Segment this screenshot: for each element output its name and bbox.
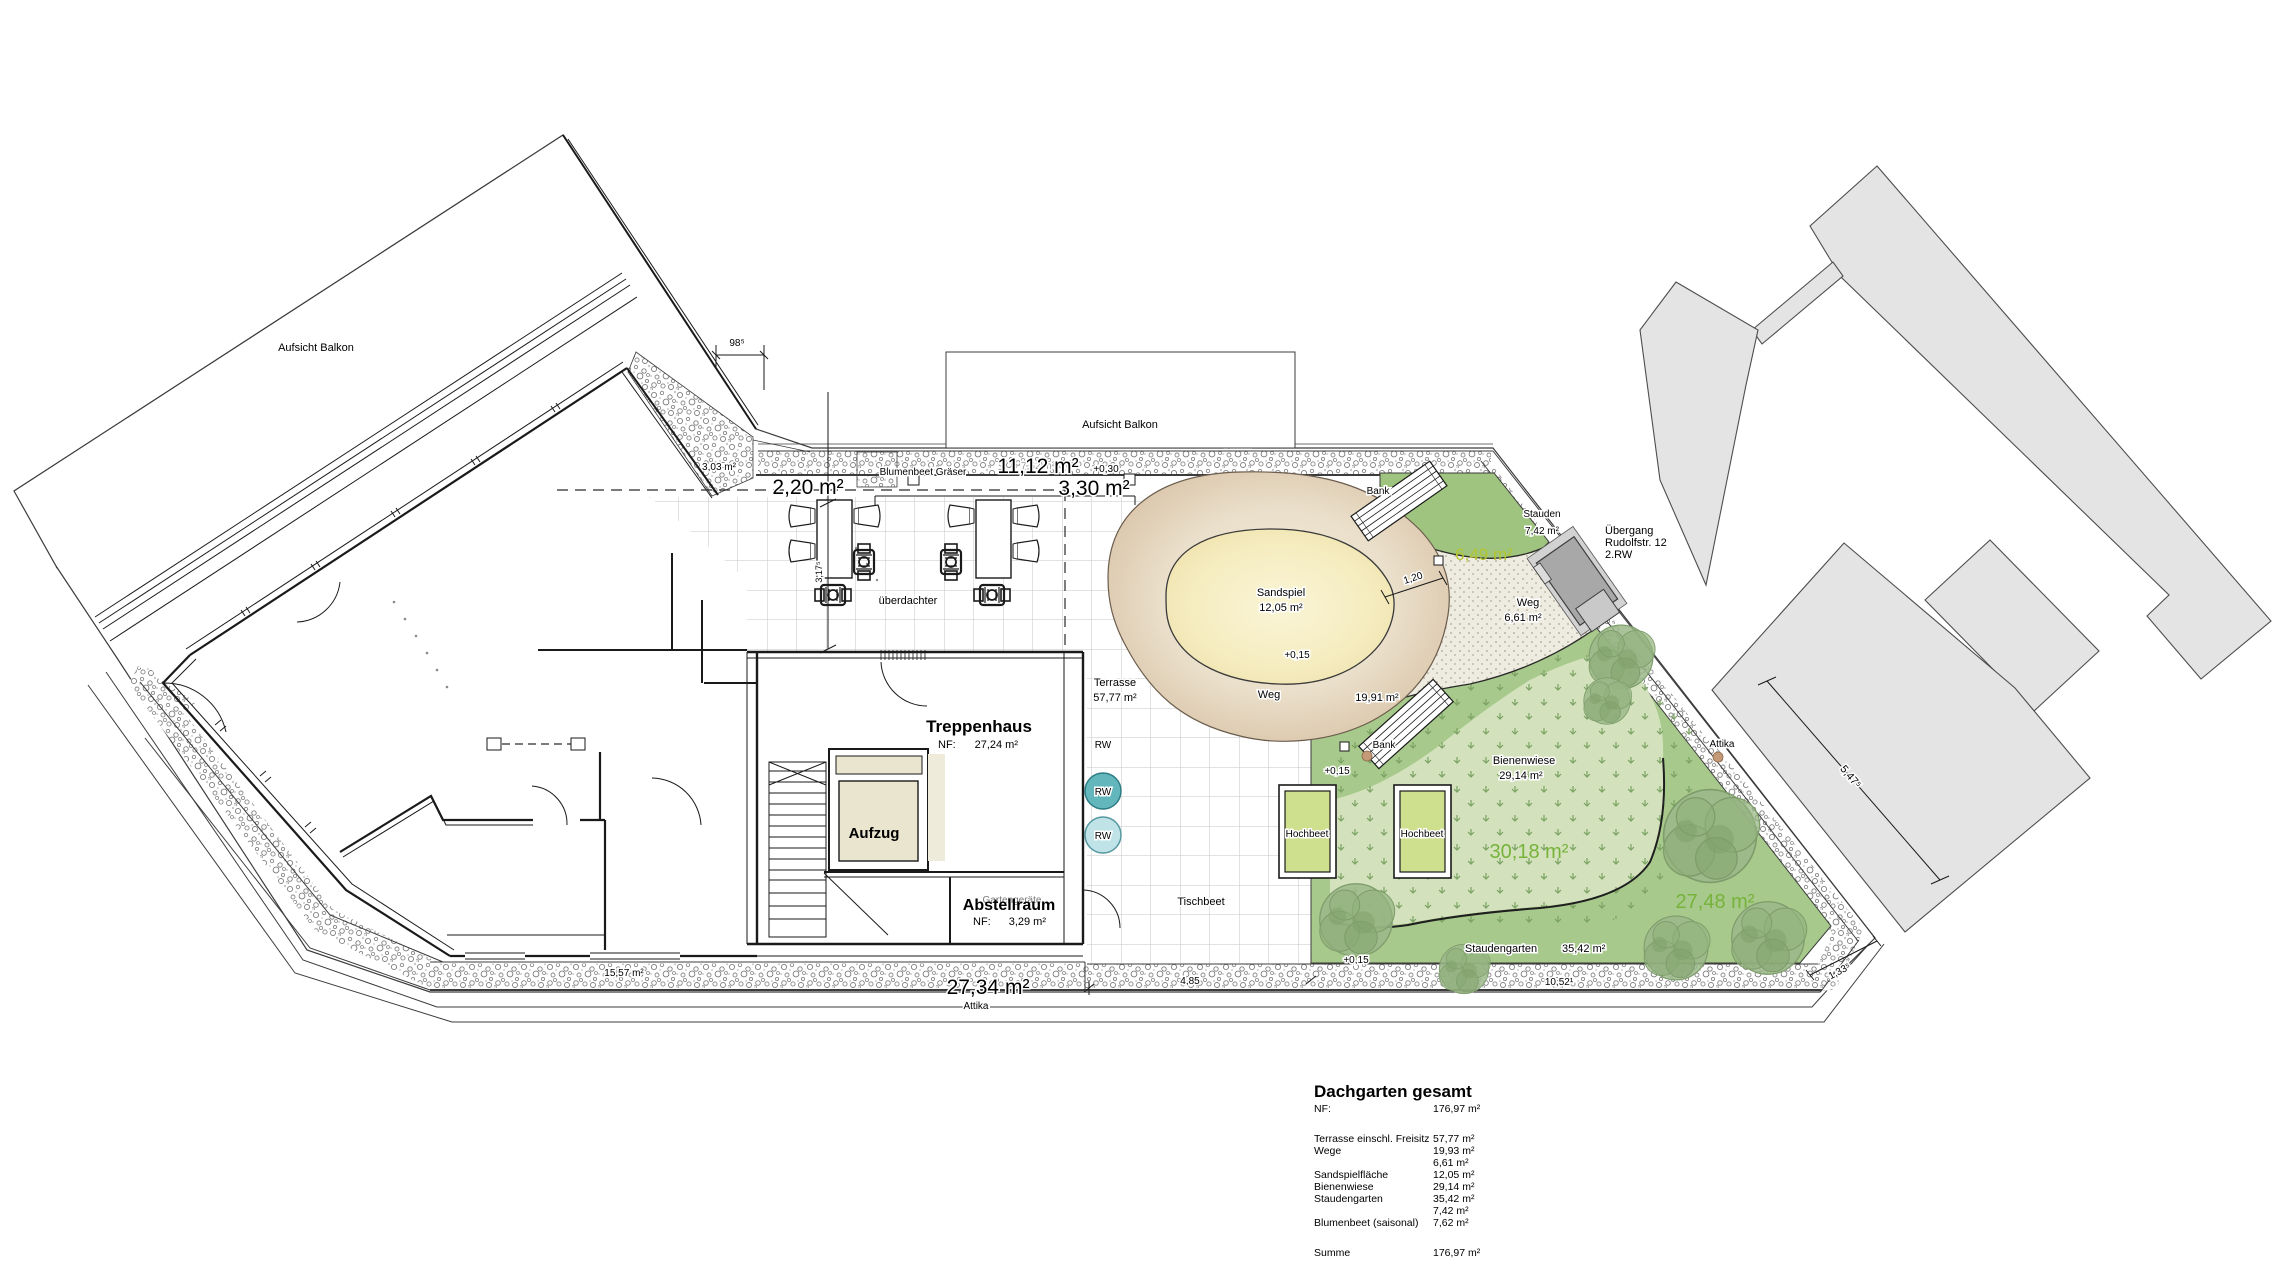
svg-text:12,05 m²: 12,05 m²: [1433, 1169, 1475, 1181]
svg-text:RW: RW: [1095, 831, 1112, 842]
svg-text:Weg: Weg: [1517, 597, 1539, 609]
svg-text:27,24 m²: 27,24 m²: [975, 739, 1019, 751]
svg-text:19,93 m²: 19,93 m²: [1433, 1145, 1475, 1157]
svg-text:3,03 m²: 3,03 m²: [702, 462, 737, 473]
svg-text:Aufzug: Aufzug: [849, 825, 900, 842]
svg-text:10,52¹: 10,52¹: [1545, 977, 1574, 988]
svg-text:12,05 m²: 12,05 m²: [1259, 602, 1303, 614]
svg-text:Terrasse einschl. Freisitz: Terrasse einschl. Freisitz: [1314, 1133, 1430, 1145]
svg-text:Bank: Bank: [1367, 486, 1391, 497]
svg-text:19,91 m²: 19,91 m²: [1355, 692, 1399, 704]
svg-text:Terrasse: Terrasse: [1094, 677, 1136, 689]
svg-text:3,29 m²: 3,29 m²: [1009, 916, 1047, 928]
svg-text:Wege: Wege: [1314, 1145, 1341, 1157]
svg-text:Blumenbeet (saisonal): Blumenbeet (saisonal): [1314, 1217, 1418, 1229]
svg-text:176,97 m²: 176,97 m²: [1433, 1247, 1481, 1259]
svg-text:RW: RW: [1095, 787, 1112, 798]
svg-text:+0,15: +0,15: [1284, 650, 1310, 661]
svg-text:176,97 m²: 176,97 m²: [1433, 1103, 1481, 1115]
svg-text:29,14 m²: 29,14 m²: [1433, 1181, 1475, 1193]
svg-text:Weg: Weg: [1258, 689, 1280, 701]
svg-text:NF:: NF:: [1314, 1103, 1331, 1115]
svg-text:Sandspiel: Sandspiel: [1257, 587, 1305, 599]
svg-text:Staudengarten: Staudengarten: [1314, 1193, 1383, 1205]
svg-text:Aufsicht Balkon: Aufsicht Balkon: [278, 342, 354, 354]
svg-text:Blumenbeet Gräser: Blumenbeet Gräser: [880, 467, 967, 478]
svg-text:Bank: Bank: [1373, 740, 1397, 751]
svg-text:4,85: 4,85: [1180, 976, 1200, 987]
svg-text:Hochbeet: Hochbeet: [1401, 829, 1444, 840]
svg-text:7,42 m²: 7,42 m²: [1433, 1205, 1469, 1217]
svg-text:Treppenhaus: Treppenhaus: [926, 717, 1032, 736]
svg-text:Summe: Summe: [1314, 1247, 1350, 1259]
svg-text:Stauden: Stauden: [1523, 509, 1560, 520]
svg-text:7,42 m²: 7,42 m²: [1525, 526, 1560, 537]
svg-text:Aufsicht Balkon: Aufsicht Balkon: [1082, 419, 1158, 431]
svg-text:57,77 m²: 57,77 m²: [1093, 692, 1137, 704]
svg-text:RW: RW: [1095, 740, 1112, 751]
svg-text:NF:: NF:: [938, 739, 956, 751]
svg-text:35,42 m²: 35,42 m²: [1562, 943, 1606, 955]
svg-text:6,61 m²: 6,61 m²: [1433, 1157, 1469, 1169]
svg-text:überdachter: überdachter: [879, 595, 938, 607]
svg-text:98⁵: 98⁵: [729, 338, 744, 349]
svg-text:Sandspielfläche: Sandspielfläche: [1314, 1169, 1388, 1181]
svg-text:Attika: Attika: [1709, 739, 1734, 750]
svg-text:11,12 m²: 11,12 m²: [997, 455, 1078, 478]
svg-text:27,48 m²: 27,48 m²: [1676, 891, 1755, 913]
svg-text:Staudengarten: Staudengarten: [1465, 943, 1537, 955]
svg-text:3,30 m²: 3,30 m²: [1058, 477, 1129, 500]
svg-text:27,34 m²: 27,34 m²: [947, 976, 1030, 999]
svg-text:Tischbeet: Tischbeet: [1177, 896, 1224, 908]
svg-text:57,77 m²: 57,77 m²: [1433, 1133, 1475, 1145]
svg-text:+0,30: +0,30: [1093, 464, 1119, 475]
svg-text:Attika: Attika: [963, 1001, 988, 1012]
svg-text:Übergang: Übergang: [1605, 525, 1653, 537]
svg-text:30,18 m²: 30,18 m²: [1490, 841, 1569, 863]
svg-text:29,14 m²: 29,14 m²: [1499, 770, 1543, 782]
svg-text:35,42 m²: 35,42 m²: [1433, 1193, 1475, 1205]
svg-text:Bienenwiese: Bienenwiese: [1493, 755, 1555, 767]
svg-text:+0,15: +0,15: [1343, 955, 1369, 966]
svg-text:+0,15: +0,15: [1324, 766, 1350, 777]
svg-text:15,57 m²: 15,57 m²: [604, 968, 644, 979]
svg-text:6,49 m²: 6,49 m²: [1455, 545, 1513, 564]
svg-text:Rudolfstr. 12: Rudolfstr. 12: [1605, 537, 1667, 549]
svg-text:2.RW: 2.RW: [1605, 549, 1633, 561]
svg-text:Hochbeet: Hochbeet: [1286, 829, 1329, 840]
svg-text:3,17⁵: 3,17⁵: [814, 561, 824, 583]
svg-text:NF:: NF:: [973, 916, 991, 928]
svg-text:Abstellraum: Abstellraum: [963, 897, 1055, 914]
svg-text:Bienenwiese: Bienenwiese: [1314, 1181, 1374, 1193]
svg-text:6,61 m²: 6,61 m²: [1504, 612, 1542, 624]
svg-text:Dachgarten gesamt: Dachgarten gesamt: [1314, 1082, 1472, 1101]
svg-text:7,62 m²: 7,62 m²: [1433, 1217, 1469, 1229]
svg-text:2,20 m²: 2,20 m²: [772, 476, 843, 499]
